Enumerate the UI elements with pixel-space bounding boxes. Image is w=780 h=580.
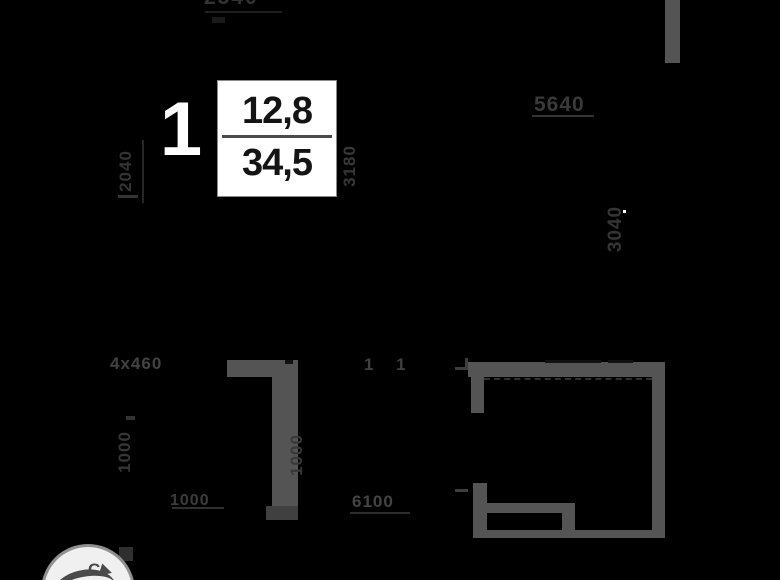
dim-unit-right: 3180 — [337, 136, 363, 196]
wall-notch-room-top-1 — [545, 360, 601, 363]
unit-total-area: 34,5 — [222, 137, 332, 189]
stray-white-dot — [623, 210, 626, 213]
dim-line-top-width — [532, 115, 594, 117]
wall-room-step-horizontal — [487, 503, 575, 513]
unit-room-area: 12,8 — [222, 85, 332, 137]
dim-tick-top — [212, 17, 225, 23]
wall-notch-room-top-2 — [608, 360, 633, 363]
wall-corridor-foot — [266, 506, 298, 520]
dim-bottom-left-vertical: 1000 — [112, 422, 138, 482]
dim-mid-left: 4x460 — [110, 354, 162, 374]
dim-corridor-marks: 1 1 — [364, 355, 415, 375]
dim-top-width: 5640 — [534, 93, 585, 117]
wall-notch-corridor — [285, 360, 293, 364]
wall-room-right — [652, 362, 665, 538]
dim-tick-bottom-left — [126, 416, 135, 420]
room-window-glazing-line — [484, 378, 652, 380]
dim-line-bottom-mid — [350, 512, 410, 514]
wall-room-left-upper — [471, 362, 484, 413]
dim-line-left-upper — [142, 140, 144, 203]
dim-bottom-mid-horizontal: 6100 — [352, 492, 394, 512]
dim-tick-room-lower — [455, 489, 468, 492]
dim-tick-room-corner — [465, 358, 468, 370]
dim-tick-left — [118, 195, 138, 198]
wall-room-step-vertical — [562, 513, 575, 532]
unit-number: 1 — [156, 94, 206, 166]
unit-area-box: 12,8 34,5 — [218, 81, 336, 196]
dim-line-top — [205, 11, 282, 13]
dim-top-clipped: 2540 — [204, 0, 259, 10]
dim-right-mid: 3040 — [601, 193, 631, 265]
dim-bottom-mid-vertical: 1000 — [284, 426, 310, 484]
floorplan-canvas: 2540 1 12,8 34,5 5640 2040 3180 3040 4x4… — [0, 0, 780, 580]
wall-room-top — [468, 362, 665, 377]
wall-top-right-stub — [665, 0, 680, 63]
dim-line-bottom-left — [172, 507, 224, 509]
